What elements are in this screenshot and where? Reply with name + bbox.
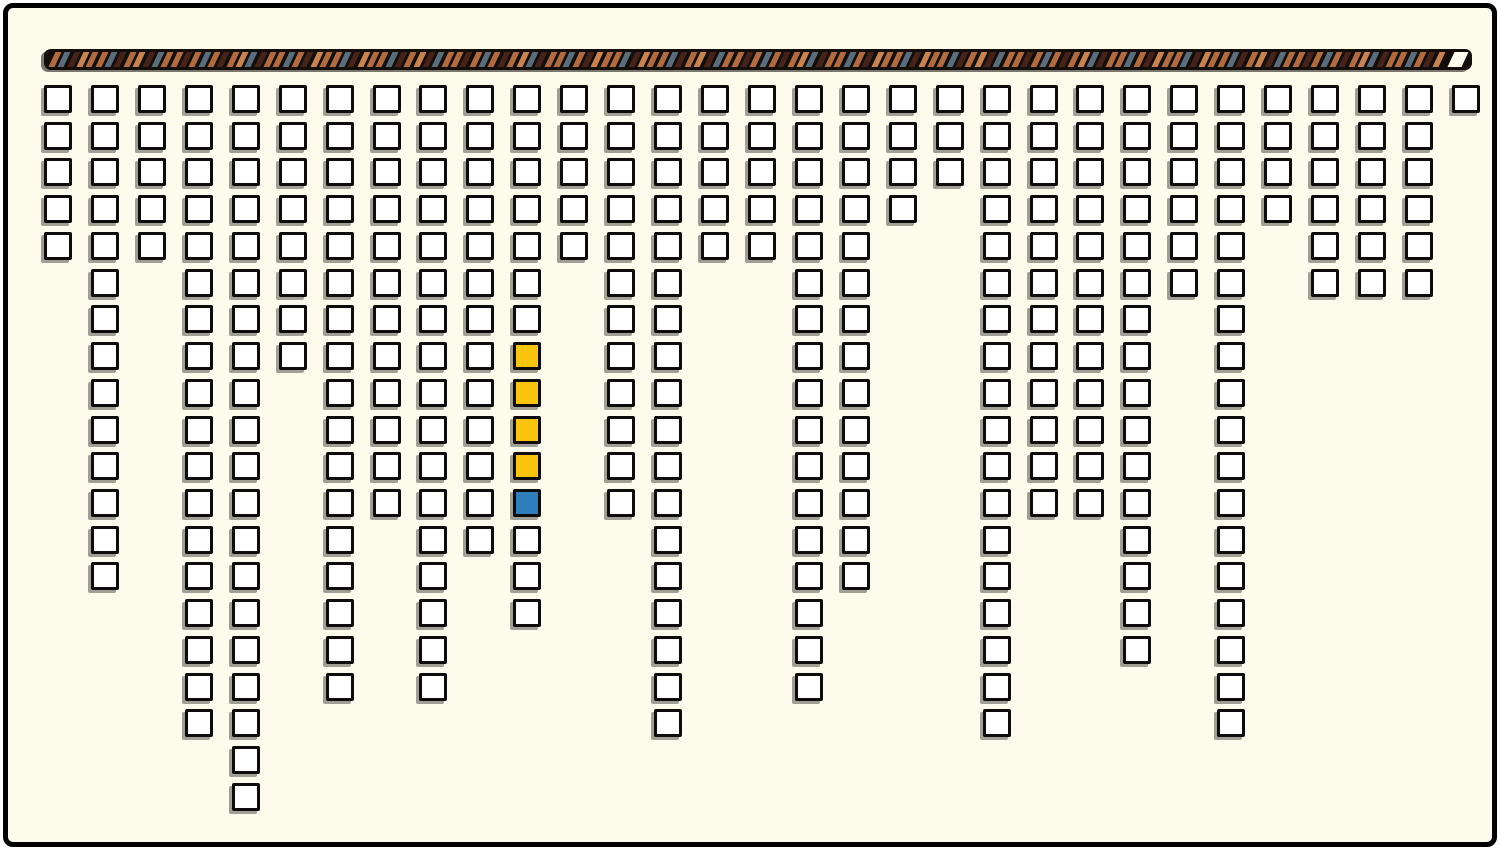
tile[interactable] bbox=[232, 379, 260, 407]
tile[interactable] bbox=[1217, 562, 1245, 590]
tile[interactable] bbox=[1030, 379, 1058, 407]
tile[interactable] bbox=[1217, 452, 1245, 480]
tile[interactable] bbox=[232, 783, 260, 811]
tile[interactable] bbox=[232, 709, 260, 737]
tile[interactable] bbox=[232, 269, 260, 297]
tile[interactable] bbox=[232, 746, 260, 774]
tile[interactable] bbox=[466, 305, 494, 333]
tile[interactable] bbox=[701, 232, 729, 260]
tile[interactable] bbox=[91, 305, 119, 333]
tile[interactable] bbox=[466, 489, 494, 517]
tile[interactable] bbox=[842, 122, 870, 150]
tile[interactable] bbox=[1123, 85, 1151, 113]
tile[interactable] bbox=[1123, 122, 1151, 150]
tile[interactable] bbox=[44, 158, 72, 186]
tile[interactable] bbox=[1030, 416, 1058, 444]
tile[interactable] bbox=[1123, 305, 1151, 333]
tile[interactable] bbox=[1217, 122, 1245, 150]
tile[interactable] bbox=[373, 195, 401, 223]
tile[interactable] bbox=[1170, 158, 1198, 186]
tile[interactable] bbox=[513, 195, 541, 223]
tile[interactable] bbox=[654, 562, 682, 590]
tile[interactable] bbox=[1358, 195, 1386, 223]
tile[interactable] bbox=[326, 158, 354, 186]
tile[interactable] bbox=[748, 195, 776, 223]
tile[interactable] bbox=[842, 342, 870, 370]
tile[interactable] bbox=[419, 416, 447, 444]
tile[interactable] bbox=[701, 122, 729, 150]
tile[interactable] bbox=[654, 599, 682, 627]
tile[interactable] bbox=[889, 195, 917, 223]
tile[interactable] bbox=[607, 379, 635, 407]
tile[interactable] bbox=[983, 122, 1011, 150]
tile[interactable] bbox=[1123, 379, 1151, 407]
tile[interactable] bbox=[373, 85, 401, 113]
tile[interactable] bbox=[138, 232, 166, 260]
tile[interactable] bbox=[185, 195, 213, 223]
tile[interactable] bbox=[326, 636, 354, 664]
tile[interactable] bbox=[842, 452, 870, 480]
tile[interactable] bbox=[373, 342, 401, 370]
tile[interactable] bbox=[1170, 195, 1198, 223]
tile[interactable] bbox=[748, 85, 776, 113]
tile[interactable] bbox=[1311, 122, 1339, 150]
tile[interactable] bbox=[232, 489, 260, 517]
tile[interactable] bbox=[326, 526, 354, 554]
tile[interactable] bbox=[1405, 269, 1433, 297]
tile[interactable] bbox=[1030, 269, 1058, 297]
tile[interactable] bbox=[560, 195, 588, 223]
tile[interactable] bbox=[607, 85, 635, 113]
tile[interactable] bbox=[889, 158, 917, 186]
tile[interactable] bbox=[1030, 158, 1058, 186]
tile[interactable] bbox=[1170, 269, 1198, 297]
tile[interactable] bbox=[1264, 85, 1292, 113]
tile[interactable] bbox=[1076, 489, 1104, 517]
tile[interactable] bbox=[185, 416, 213, 444]
tile-yellow[interactable] bbox=[513, 379, 541, 407]
tile[interactable] bbox=[185, 452, 213, 480]
tile[interactable] bbox=[1405, 232, 1433, 260]
tile[interactable] bbox=[842, 526, 870, 554]
tile[interactable] bbox=[795, 562, 823, 590]
tile[interactable] bbox=[373, 269, 401, 297]
tile[interactable] bbox=[1123, 158, 1151, 186]
tile[interactable] bbox=[795, 489, 823, 517]
tile[interactable] bbox=[560, 122, 588, 150]
tile[interactable] bbox=[1452, 85, 1480, 113]
tile[interactable] bbox=[326, 562, 354, 590]
tile[interactable] bbox=[795, 122, 823, 150]
tile[interactable] bbox=[1123, 269, 1151, 297]
tile[interactable] bbox=[1217, 673, 1245, 701]
tile[interactable] bbox=[279, 342, 307, 370]
tile[interactable] bbox=[138, 158, 166, 186]
tile[interactable] bbox=[1170, 122, 1198, 150]
tile[interactable] bbox=[607, 305, 635, 333]
tile[interactable] bbox=[983, 452, 1011, 480]
tile[interactable] bbox=[1217, 85, 1245, 113]
tile[interactable] bbox=[513, 269, 541, 297]
tile[interactable] bbox=[326, 342, 354, 370]
tile[interactable] bbox=[419, 379, 447, 407]
tile[interactable] bbox=[91, 269, 119, 297]
tile[interactable] bbox=[419, 232, 447, 260]
tile[interactable] bbox=[607, 232, 635, 260]
tile[interactable] bbox=[1405, 158, 1433, 186]
tile[interactable] bbox=[607, 416, 635, 444]
tile[interactable] bbox=[1030, 452, 1058, 480]
tile[interactable] bbox=[983, 305, 1011, 333]
tile[interactable] bbox=[373, 232, 401, 260]
tile[interactable] bbox=[1405, 195, 1433, 223]
tile[interactable] bbox=[185, 636, 213, 664]
tile[interactable] bbox=[654, 305, 682, 333]
tile[interactable] bbox=[91, 562, 119, 590]
tile[interactable] bbox=[232, 232, 260, 260]
tile-yellow[interactable] bbox=[513, 452, 541, 480]
tile[interactable] bbox=[1311, 232, 1339, 260]
tile[interactable] bbox=[326, 416, 354, 444]
tile[interactable] bbox=[983, 636, 1011, 664]
tile[interactable] bbox=[419, 158, 447, 186]
tile[interactable] bbox=[1217, 709, 1245, 737]
tile[interactable] bbox=[326, 452, 354, 480]
tile[interactable] bbox=[326, 599, 354, 627]
tile[interactable] bbox=[44, 195, 72, 223]
tile[interactable] bbox=[419, 673, 447, 701]
tile[interactable] bbox=[842, 562, 870, 590]
tile[interactable] bbox=[1076, 305, 1104, 333]
tile[interactable] bbox=[1217, 195, 1245, 223]
tile[interactable] bbox=[936, 158, 964, 186]
tile[interactable] bbox=[795, 379, 823, 407]
tile[interactable] bbox=[889, 122, 917, 150]
tile[interactable] bbox=[795, 195, 823, 223]
tile[interactable] bbox=[654, 636, 682, 664]
tile[interactable] bbox=[185, 158, 213, 186]
tile[interactable] bbox=[326, 122, 354, 150]
tile[interactable] bbox=[1358, 269, 1386, 297]
tile[interactable] bbox=[513, 158, 541, 186]
tile[interactable] bbox=[279, 195, 307, 223]
tile[interactable] bbox=[1358, 232, 1386, 260]
tile[interactable] bbox=[1030, 122, 1058, 150]
tile[interactable] bbox=[185, 599, 213, 627]
tile[interactable] bbox=[232, 305, 260, 333]
tile-yellow[interactable] bbox=[513, 416, 541, 444]
tile[interactable] bbox=[466, 526, 494, 554]
tile[interactable] bbox=[466, 85, 494, 113]
tile[interactable] bbox=[748, 158, 776, 186]
tile[interactable] bbox=[185, 379, 213, 407]
tile[interactable] bbox=[1358, 85, 1386, 113]
tile[interactable] bbox=[795, 416, 823, 444]
tile[interactable] bbox=[279, 158, 307, 186]
tile[interactable] bbox=[419, 489, 447, 517]
tile[interactable] bbox=[936, 122, 964, 150]
tile[interactable] bbox=[419, 305, 447, 333]
tile[interactable] bbox=[138, 85, 166, 113]
tile[interactable] bbox=[419, 85, 447, 113]
tile[interactable] bbox=[91, 232, 119, 260]
tile[interactable] bbox=[185, 305, 213, 333]
tile[interactable] bbox=[560, 158, 588, 186]
tile[interactable] bbox=[654, 195, 682, 223]
tile[interactable] bbox=[1217, 636, 1245, 664]
tile[interactable] bbox=[1217, 158, 1245, 186]
tile[interactable] bbox=[1217, 599, 1245, 627]
tile[interactable] bbox=[232, 85, 260, 113]
tile[interactable] bbox=[91, 452, 119, 480]
tile[interactable] bbox=[1358, 122, 1386, 150]
tile[interactable] bbox=[842, 269, 870, 297]
tile[interactable] bbox=[1311, 85, 1339, 113]
tile[interactable] bbox=[1217, 489, 1245, 517]
tile[interactable] bbox=[232, 562, 260, 590]
tile[interactable] bbox=[419, 452, 447, 480]
tile[interactable] bbox=[1030, 195, 1058, 223]
tile[interactable] bbox=[983, 269, 1011, 297]
tile[interactable] bbox=[795, 526, 823, 554]
tile[interactable] bbox=[607, 122, 635, 150]
tile[interactable] bbox=[419, 636, 447, 664]
tile[interactable] bbox=[1217, 232, 1245, 260]
tile[interactable] bbox=[185, 85, 213, 113]
tile[interactable] bbox=[1076, 342, 1104, 370]
tile[interactable] bbox=[983, 416, 1011, 444]
tile[interactable] bbox=[1123, 416, 1151, 444]
tile[interactable] bbox=[654, 85, 682, 113]
tile[interactable] bbox=[373, 489, 401, 517]
tile[interactable] bbox=[185, 342, 213, 370]
tile[interactable] bbox=[1030, 489, 1058, 517]
tile[interactable] bbox=[983, 526, 1011, 554]
tile[interactable] bbox=[795, 342, 823, 370]
tile[interactable] bbox=[654, 232, 682, 260]
tile[interactable] bbox=[1217, 526, 1245, 554]
tile[interactable] bbox=[701, 85, 729, 113]
tile[interactable] bbox=[1123, 452, 1151, 480]
tile[interactable] bbox=[326, 489, 354, 517]
tile[interactable] bbox=[1311, 195, 1339, 223]
tile[interactable] bbox=[795, 599, 823, 627]
tile[interactable] bbox=[1030, 232, 1058, 260]
tile[interactable] bbox=[842, 232, 870, 260]
tile[interactable] bbox=[748, 122, 776, 150]
tile[interactable] bbox=[466, 195, 494, 223]
tile[interactable] bbox=[1076, 269, 1104, 297]
tile[interactable] bbox=[1030, 342, 1058, 370]
tile[interactable] bbox=[232, 636, 260, 664]
tile[interactable] bbox=[842, 85, 870, 113]
tile-blue[interactable] bbox=[513, 489, 541, 517]
tile[interactable] bbox=[232, 195, 260, 223]
tile[interactable] bbox=[513, 122, 541, 150]
tile[interactable] bbox=[466, 122, 494, 150]
tile[interactable] bbox=[654, 709, 682, 737]
tile[interactable] bbox=[1405, 122, 1433, 150]
tile[interactable] bbox=[419, 526, 447, 554]
tile[interactable] bbox=[1217, 379, 1245, 407]
tile[interactable] bbox=[1123, 599, 1151, 627]
tile[interactable] bbox=[1217, 305, 1245, 333]
tile[interactable] bbox=[654, 526, 682, 554]
tile[interactable] bbox=[1264, 158, 1292, 186]
tile[interactable] bbox=[1076, 416, 1104, 444]
tile[interactable] bbox=[1076, 122, 1104, 150]
tile[interactable] bbox=[373, 122, 401, 150]
tile[interactable] bbox=[983, 379, 1011, 407]
tile[interactable] bbox=[795, 232, 823, 260]
tile[interactable] bbox=[1076, 85, 1104, 113]
tile[interactable] bbox=[560, 232, 588, 260]
tile[interactable] bbox=[795, 673, 823, 701]
tile[interactable] bbox=[232, 673, 260, 701]
tile[interactable] bbox=[1264, 195, 1292, 223]
tile[interactable] bbox=[419, 122, 447, 150]
tile[interactable] bbox=[795, 85, 823, 113]
tile[interactable] bbox=[91, 416, 119, 444]
tile[interactable] bbox=[185, 269, 213, 297]
tile[interactable] bbox=[654, 379, 682, 407]
tile[interactable] bbox=[654, 158, 682, 186]
tile[interactable] bbox=[654, 489, 682, 517]
tile[interactable] bbox=[44, 122, 72, 150]
tile[interactable] bbox=[1030, 305, 1058, 333]
tile[interactable] bbox=[138, 195, 166, 223]
tile[interactable] bbox=[185, 709, 213, 737]
tile[interactable] bbox=[1123, 526, 1151, 554]
tile[interactable] bbox=[701, 195, 729, 223]
tile[interactable] bbox=[185, 489, 213, 517]
tile[interactable] bbox=[842, 158, 870, 186]
tile[interactable] bbox=[1123, 489, 1151, 517]
tile[interactable] bbox=[419, 269, 447, 297]
tile[interactable] bbox=[466, 342, 494, 370]
tile[interactable] bbox=[654, 122, 682, 150]
tile[interactable] bbox=[466, 379, 494, 407]
tile[interactable] bbox=[1264, 122, 1292, 150]
tile[interactable] bbox=[373, 452, 401, 480]
tile[interactable] bbox=[983, 709, 1011, 737]
tile[interactable] bbox=[607, 158, 635, 186]
tile[interactable] bbox=[795, 269, 823, 297]
tile[interactable] bbox=[91, 122, 119, 150]
tile[interactable] bbox=[795, 305, 823, 333]
tile[interactable] bbox=[842, 195, 870, 223]
tile[interactable] bbox=[654, 673, 682, 701]
tile[interactable] bbox=[842, 379, 870, 407]
tile[interactable] bbox=[232, 599, 260, 627]
tile[interactable] bbox=[1076, 195, 1104, 223]
tile[interactable] bbox=[419, 342, 447, 370]
tile[interactable] bbox=[983, 489, 1011, 517]
tile[interactable] bbox=[326, 673, 354, 701]
tile[interactable] bbox=[232, 452, 260, 480]
tile[interactable] bbox=[983, 232, 1011, 260]
tile[interactable] bbox=[983, 599, 1011, 627]
tile[interactable] bbox=[983, 158, 1011, 186]
tile[interactable] bbox=[1076, 232, 1104, 260]
tile[interactable] bbox=[326, 232, 354, 260]
tile-yellow[interactable] bbox=[513, 342, 541, 370]
tile[interactable] bbox=[232, 526, 260, 554]
tile[interactable] bbox=[607, 342, 635, 370]
tile[interactable] bbox=[279, 122, 307, 150]
tile[interactable] bbox=[513, 232, 541, 260]
tile[interactable] bbox=[91, 158, 119, 186]
tile[interactable] bbox=[983, 85, 1011, 113]
tile[interactable] bbox=[91, 526, 119, 554]
tile[interactable] bbox=[1123, 342, 1151, 370]
tile[interactable] bbox=[419, 599, 447, 627]
tile[interactable] bbox=[326, 305, 354, 333]
tile[interactable] bbox=[607, 195, 635, 223]
tile[interactable] bbox=[44, 85, 72, 113]
tile[interactable] bbox=[654, 342, 682, 370]
tile[interactable] bbox=[185, 232, 213, 260]
tile[interactable] bbox=[1030, 85, 1058, 113]
tile[interactable] bbox=[185, 562, 213, 590]
tile[interactable] bbox=[373, 158, 401, 186]
tile[interactable] bbox=[983, 562, 1011, 590]
tile[interactable] bbox=[1123, 562, 1151, 590]
tile[interactable] bbox=[1076, 379, 1104, 407]
tile[interactable] bbox=[513, 562, 541, 590]
tile[interactable] bbox=[1170, 232, 1198, 260]
tile[interactable] bbox=[279, 232, 307, 260]
tile[interactable] bbox=[748, 232, 776, 260]
tile[interactable] bbox=[1311, 269, 1339, 297]
tile[interactable] bbox=[560, 85, 588, 113]
tile[interactable] bbox=[91, 342, 119, 370]
tile[interactable] bbox=[983, 673, 1011, 701]
tile[interactable] bbox=[1123, 232, 1151, 260]
tile[interactable] bbox=[842, 489, 870, 517]
tile[interactable] bbox=[513, 526, 541, 554]
tile[interactable] bbox=[842, 416, 870, 444]
tile[interactable] bbox=[983, 195, 1011, 223]
tile[interactable] bbox=[185, 122, 213, 150]
tile[interactable] bbox=[279, 269, 307, 297]
tile[interactable] bbox=[91, 85, 119, 113]
tile[interactable] bbox=[326, 85, 354, 113]
tile[interactable] bbox=[1311, 158, 1339, 186]
tile[interactable] bbox=[232, 342, 260, 370]
tile[interactable] bbox=[91, 489, 119, 517]
tile[interactable] bbox=[138, 122, 166, 150]
tile[interactable] bbox=[1123, 195, 1151, 223]
tile[interactable] bbox=[185, 526, 213, 554]
tile[interactable] bbox=[419, 562, 447, 590]
tile[interactable] bbox=[419, 195, 447, 223]
tile[interactable] bbox=[1358, 158, 1386, 186]
tile[interactable] bbox=[889, 85, 917, 113]
tile[interactable] bbox=[1076, 452, 1104, 480]
tile[interactable] bbox=[232, 416, 260, 444]
tile[interactable] bbox=[91, 195, 119, 223]
tile[interactable] bbox=[279, 305, 307, 333]
tile[interactable] bbox=[1217, 342, 1245, 370]
tile[interactable] bbox=[373, 416, 401, 444]
tile[interactable] bbox=[232, 122, 260, 150]
tile[interactable] bbox=[466, 452, 494, 480]
tile[interactable] bbox=[983, 342, 1011, 370]
tile[interactable] bbox=[373, 305, 401, 333]
tile[interactable] bbox=[842, 305, 870, 333]
tile[interactable] bbox=[936, 85, 964, 113]
